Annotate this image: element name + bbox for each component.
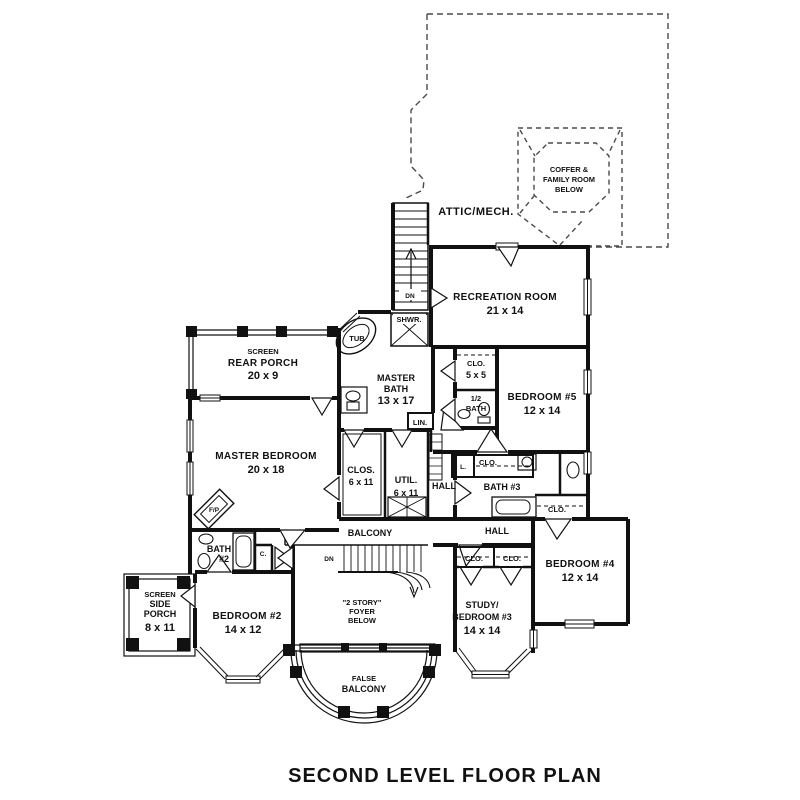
attic-label: ATTIC/MECH. bbox=[438, 206, 514, 218]
room-label-bath2-1: BATH bbox=[207, 544, 231, 554]
room-dims-study: 14 x 14 bbox=[464, 625, 502, 637]
room-label-study-2: BEDROOM #3 bbox=[452, 612, 512, 622]
linen-label: LIN. bbox=[413, 418, 427, 427]
room-label-study-1: STUDY/ bbox=[465, 600, 499, 610]
room-dims-bedroom5: 12 x 14 bbox=[524, 405, 562, 417]
linen-small-label: L. bbox=[460, 464, 466, 471]
room-label-recreation: RECREATION ROOM bbox=[453, 292, 557, 303]
clo-label-study-left: CLO. bbox=[465, 554, 483, 563]
closet-dims-clo5x5: 5 x 5 bbox=[466, 370, 486, 380]
room-dims-bedroom4: 12 x 14 bbox=[562, 572, 600, 584]
room-label-master-bath-2: BATH bbox=[384, 384, 408, 394]
room-dims-side-porch: 8 x 11 bbox=[145, 622, 175, 634]
false-balcony-structure bbox=[283, 643, 441, 723]
shower-label: SHWR. bbox=[397, 315, 422, 324]
room-dims-rear-porch: 20 x 9 bbox=[248, 370, 279, 382]
foyer-label-3: BELOW bbox=[348, 616, 377, 625]
room-label-side-porch-1: SIDE bbox=[149, 599, 170, 609]
tub-label: TUB bbox=[349, 334, 365, 343]
room-label-master-bath-1: MASTER bbox=[377, 373, 416, 383]
clo-label-bed5: CLO. bbox=[479, 458, 497, 467]
clo-label-study-right: CLO. bbox=[503, 554, 521, 563]
lower-stairs bbox=[285, 530, 430, 597]
closet-label-clo5x5: CLO. bbox=[467, 359, 485, 368]
room-type-rear-porch: SCREEN bbox=[247, 347, 278, 356]
room-dims-clos: 6 x 11 bbox=[349, 477, 374, 487]
room-label-bedroom4: BEDROOM #4 bbox=[545, 559, 614, 570]
dn-label-lower-stairs: DN bbox=[324, 556, 334, 563]
false-balcony-label-1: FALSE bbox=[352, 674, 376, 683]
room-type-side-porch: SCREEN bbox=[144, 590, 175, 599]
foyer-label-2: FOYER bbox=[349, 607, 375, 616]
room-label-bedroom5: BEDROOM #5 bbox=[507, 392, 576, 403]
coffer-label-1: COFFER & bbox=[550, 165, 589, 174]
coffer-label-3: BELOW bbox=[555, 185, 584, 194]
false-balcony-label-2: BALCONY bbox=[342, 684, 387, 694]
hall-label-west: HALL bbox=[432, 481, 456, 491]
room-dims-master-bath: 13 x 17 bbox=[378, 395, 415, 407]
room-label-bath3: BATH #3 bbox=[484, 482, 521, 492]
room-label-bedroom2: BEDROOM #2 bbox=[212, 611, 281, 622]
balcony-label: BALCONY bbox=[348, 528, 393, 538]
dn-label-upper-stairs: DN bbox=[405, 293, 415, 300]
room-label-half-bath-2: BATH bbox=[466, 404, 486, 413]
clo-label-bath3: CLO. bbox=[548, 505, 566, 514]
room-dims-master-bedroom: 20 x 18 bbox=[248, 464, 285, 476]
room-label-util: UTIL. bbox=[395, 475, 418, 485]
room-label-side-porch-2: PORCH bbox=[144, 609, 177, 619]
coffer-label-2: FAMILY ROOM bbox=[543, 175, 595, 184]
room-dims-bedroom2: 14 x 12 bbox=[225, 624, 262, 636]
room-dims-util: 6 x 11 bbox=[394, 488, 419, 498]
room-dims-recreation: 21 x 14 bbox=[487, 305, 525, 317]
floor-plan-drawing: ATTIC/MECH. COFFER & FAMILY ROOM BELOW R… bbox=[0, 0, 800, 800]
plan-title: SECOND LEVEL FLOOR PLAN bbox=[288, 765, 602, 787]
floor-plan-sheet: ATTIC/MECH. COFFER & FAMILY ROOM BELOW R… bbox=[0, 0, 800, 800]
hall-label-south: HALL bbox=[485, 526, 509, 536]
room-label-bath2-2: #2 bbox=[219, 554, 229, 564]
room-label-clos: CLOS. bbox=[347, 465, 375, 475]
room-label-half-bath-1: 1/2 bbox=[471, 394, 481, 403]
room-label-master-bedroom: MASTER BEDROOM bbox=[215, 451, 316, 462]
foyer-label-1: "2 STORY" bbox=[343, 598, 382, 607]
room-label-rear-porch: REAR PORCH bbox=[228, 358, 298, 369]
closet-small-label: C. bbox=[260, 551, 267, 558]
fireplace-label: F/P bbox=[209, 507, 220, 514]
labels-layer: ATTIC/MECH. COFFER & FAMILY ROOM BELOW R… bbox=[144, 165, 615, 787]
